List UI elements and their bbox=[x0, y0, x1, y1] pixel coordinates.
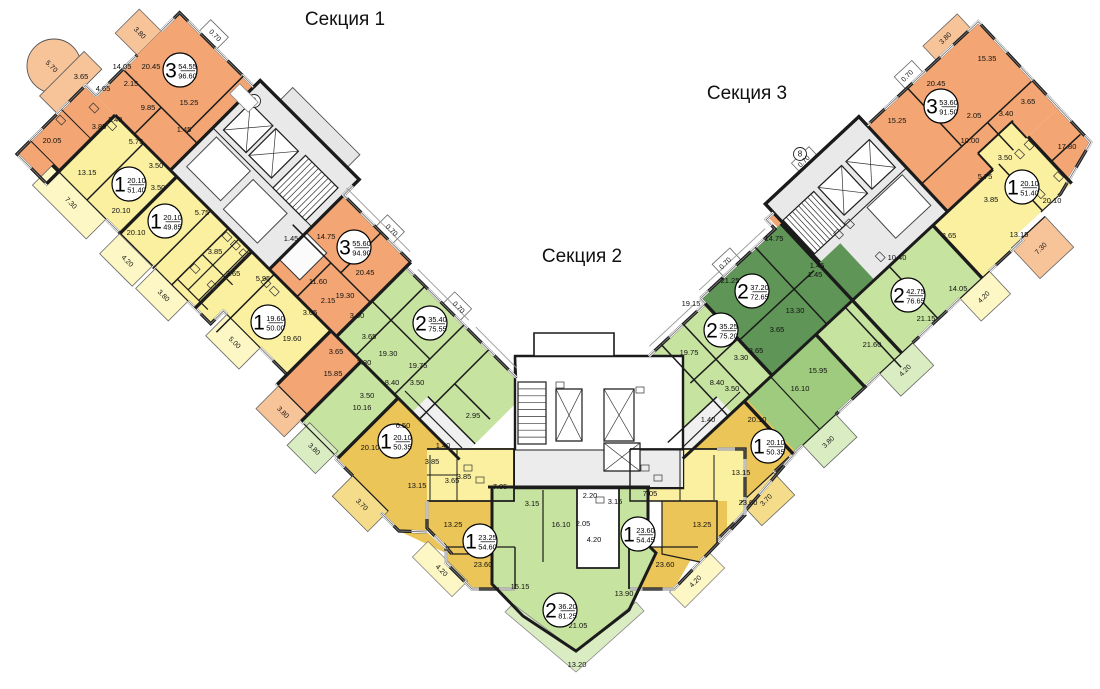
svg-text:6.50: 6.50 bbox=[396, 421, 411, 430]
svg-text:2: 2 bbox=[415, 313, 427, 336]
svg-text:49.85: 49.85 bbox=[163, 223, 182, 232]
svg-text:42.75: 42.75 bbox=[906, 287, 925, 296]
svg-text:Секция 1: Секция 1 bbox=[305, 9, 385, 30]
svg-text:5.75: 5.75 bbox=[195, 208, 210, 217]
svg-text:3.65: 3.65 bbox=[770, 325, 785, 334]
svg-text:3.50: 3.50 bbox=[725, 384, 740, 393]
svg-text:1: 1 bbox=[465, 531, 477, 554]
svg-text:14.05: 14.05 bbox=[113, 62, 132, 71]
svg-text:3.65: 3.65 bbox=[329, 347, 344, 356]
svg-text:81.25: 81.25 bbox=[558, 612, 577, 621]
svg-text:3.65: 3.65 bbox=[942, 231, 957, 240]
svg-text:19.30: 19.30 bbox=[336, 291, 355, 300]
svg-text:15.85: 15.85 bbox=[324, 369, 343, 378]
svg-text:13.25: 13.25 bbox=[693, 520, 712, 529]
svg-text:8.40: 8.40 bbox=[385, 378, 400, 387]
svg-text:50.35: 50.35 bbox=[766, 448, 785, 457]
svg-text:20.10: 20.10 bbox=[766, 438, 785, 447]
svg-text:3.65: 3.65 bbox=[749, 346, 764, 355]
svg-text:16.10: 16.10 bbox=[791, 384, 810, 393]
svg-text:3.15: 3.15 bbox=[525, 499, 540, 508]
svg-text:55.60: 55.60 bbox=[352, 239, 371, 248]
svg-text:3.30: 3.30 bbox=[357, 358, 372, 367]
svg-text:2: 2 bbox=[545, 600, 557, 623]
svg-text:Секция 2: Секция 2 bbox=[542, 246, 622, 267]
svg-text:3.50: 3.50 bbox=[149, 161, 164, 170]
svg-text:1.40: 1.40 bbox=[436, 441, 451, 450]
svg-text:2.20: 2.20 bbox=[583, 491, 598, 500]
svg-text:3: 3 bbox=[165, 60, 177, 83]
svg-text:23.60: 23.60 bbox=[636, 526, 655, 535]
svg-text:13.15: 13.15 bbox=[732, 468, 751, 477]
svg-text:19.60: 19.60 bbox=[266, 314, 285, 323]
svg-text:9.85: 9.85 bbox=[141, 103, 156, 112]
svg-text:19.75: 19.75 bbox=[409, 361, 428, 370]
svg-text:23.60: 23.60 bbox=[656, 560, 675, 569]
svg-text:20.10: 20.10 bbox=[127, 228, 146, 237]
svg-text:3.05: 3.05 bbox=[303, 308, 318, 317]
svg-text:8: 8 bbox=[798, 150, 803, 159]
svg-text:53.60: 53.60 bbox=[939, 98, 958, 107]
svg-text:3.50: 3.50 bbox=[151, 183, 166, 192]
svg-text:20.45: 20.45 bbox=[356, 268, 375, 277]
svg-text:13.15: 13.15 bbox=[1010, 230, 1029, 239]
svg-text:15.95: 15.95 bbox=[809, 366, 828, 375]
svg-text:23.60: 23.60 bbox=[739, 498, 758, 507]
svg-text:23.25: 23.25 bbox=[478, 533, 497, 542]
svg-text:36.20: 36.20 bbox=[558, 602, 577, 611]
svg-text:15.35: 15.35 bbox=[978, 54, 997, 63]
svg-text:20.05: 20.05 bbox=[43, 136, 62, 145]
svg-text:2.15: 2.15 bbox=[124, 79, 139, 88]
svg-text:20.10: 20.10 bbox=[748, 415, 767, 424]
svg-text:15.25: 15.25 bbox=[888, 116, 907, 125]
svg-text:10.00: 10.00 bbox=[961, 136, 980, 145]
svg-text:20.10: 20.10 bbox=[1043, 196, 1062, 205]
svg-text:2.05: 2.05 bbox=[967, 111, 982, 120]
svg-text:3: 3 bbox=[339, 237, 351, 260]
svg-text:1: 1 bbox=[380, 431, 392, 454]
svg-text:21.60: 21.60 bbox=[863, 340, 882, 349]
svg-text:3.40: 3.40 bbox=[999, 109, 1014, 118]
svg-text:1: 1 bbox=[114, 174, 126, 197]
svg-text:5.75: 5.75 bbox=[129, 137, 144, 146]
svg-text:1.40: 1.40 bbox=[701, 415, 716, 424]
svg-text:4.65: 4.65 bbox=[96, 84, 111, 93]
svg-text:54.60: 54.60 bbox=[478, 543, 497, 552]
svg-text:1.45: 1.45 bbox=[284, 234, 299, 243]
svg-text:14.05: 14.05 bbox=[949, 284, 968, 293]
svg-text:96.60: 96.60 bbox=[178, 72, 197, 81]
svg-text:20.10: 20.10 bbox=[112, 206, 131, 215]
svg-text:15.25: 15.25 bbox=[180, 98, 199, 107]
svg-text:20.45: 20.45 bbox=[927, 79, 946, 88]
svg-text:3.85: 3.85 bbox=[425, 457, 440, 466]
svg-text:3.85: 3.85 bbox=[92, 122, 107, 131]
svg-text:3.60: 3.60 bbox=[350, 311, 365, 320]
svg-text:54.55: 54.55 bbox=[178, 62, 197, 71]
svg-text:3.85: 3.85 bbox=[984, 195, 999, 204]
svg-text:54.45: 54.45 bbox=[636, 536, 655, 545]
svg-text:2.95: 2.95 bbox=[466, 411, 481, 420]
svg-text:3.65: 3.65 bbox=[362, 332, 377, 341]
svg-text:3.65: 3.65 bbox=[445, 476, 460, 485]
svg-text:16.10: 16.10 bbox=[552, 520, 571, 529]
svg-text:20.45: 20.45 bbox=[142, 62, 161, 71]
svg-text:1.45: 1.45 bbox=[808, 270, 823, 279]
svg-text:1: 1 bbox=[150, 211, 162, 234]
svg-text:2: 2 bbox=[893, 285, 905, 308]
svg-text:4.20: 4.20 bbox=[587, 535, 602, 544]
svg-text:7.05: 7.05 bbox=[643, 489, 658, 498]
svg-text:37.20: 37.20 bbox=[750, 283, 769, 292]
svg-text:Секция 3: Секция 3 bbox=[707, 83, 787, 104]
svg-text:21.05: 21.05 bbox=[569, 621, 588, 630]
svg-text:1: 1 bbox=[753, 436, 765, 459]
svg-text:51.40: 51.40 bbox=[127, 186, 146, 195]
svg-text:23.60: 23.60 bbox=[474, 560, 493, 569]
svg-text:13.20: 13.20 bbox=[568, 660, 587, 669]
svg-text:2.15: 2.15 bbox=[321, 296, 336, 305]
svg-text:7.05: 7.05 bbox=[493, 482, 508, 491]
svg-text:20.10: 20.10 bbox=[163, 213, 182, 222]
svg-text:3.30: 3.30 bbox=[734, 353, 749, 362]
svg-text:75.55: 75.55 bbox=[428, 325, 447, 334]
svg-text:1: 1 bbox=[623, 524, 635, 547]
svg-text:3.50: 3.50 bbox=[410, 378, 425, 387]
svg-text:1.45: 1.45 bbox=[810, 261, 825, 270]
svg-text:13.15: 13.15 bbox=[408, 481, 427, 490]
svg-text:2.05: 2.05 bbox=[576, 519, 591, 528]
svg-text:20.10: 20.10 bbox=[1020, 179, 1039, 188]
svg-text:1.45: 1.45 bbox=[177, 125, 192, 134]
svg-text:50.00: 50.00 bbox=[266, 324, 285, 333]
svg-text:76.65: 76.65 bbox=[906, 297, 925, 306]
svg-text:5.75: 5.75 bbox=[978, 172, 993, 181]
svg-text:3.65: 3.65 bbox=[74, 72, 89, 81]
svg-text:14.75: 14.75 bbox=[765, 234, 784, 243]
svg-text:5.95: 5.95 bbox=[256, 274, 271, 283]
svg-text:20.10: 20.10 bbox=[393, 433, 412, 442]
svg-text:3.15: 3.15 bbox=[608, 497, 623, 506]
svg-text:8.40: 8.40 bbox=[710, 378, 725, 387]
svg-text:15.15: 15.15 bbox=[511, 582, 530, 591]
svg-text:3.65: 3.65 bbox=[226, 269, 241, 278]
svg-text:21.15: 21.15 bbox=[917, 314, 936, 323]
svg-text:19.30: 19.30 bbox=[379, 349, 398, 358]
svg-text:19.60: 19.60 bbox=[283, 334, 302, 343]
svg-text:72.65: 72.65 bbox=[750, 293, 769, 302]
svg-text:19.75: 19.75 bbox=[680, 348, 699, 357]
svg-text:51.40: 51.40 bbox=[1020, 189, 1039, 198]
svg-text:17.80: 17.80 bbox=[1058, 142, 1077, 151]
svg-text:13.15: 13.15 bbox=[78, 168, 97, 177]
svg-text:1: 1 bbox=[253, 312, 265, 335]
svg-text:50.35: 50.35 bbox=[393, 443, 412, 452]
svg-text:75.20: 75.20 bbox=[719, 332, 738, 341]
svg-text:20.10: 20.10 bbox=[361, 443, 380, 452]
svg-text:13.90: 13.90 bbox=[615, 589, 634, 598]
svg-text:2: 2 bbox=[706, 320, 718, 343]
svg-text:3.85: 3.85 bbox=[208, 247, 223, 256]
svg-text:91.50: 91.50 bbox=[939, 108, 958, 117]
svg-text:3.65: 3.65 bbox=[1021, 97, 1036, 106]
svg-text:1.40: 1.40 bbox=[108, 115, 123, 124]
svg-text:11.60: 11.60 bbox=[309, 277, 327, 286]
svg-text:20.10: 20.10 bbox=[127, 176, 146, 185]
svg-text:14.75: 14.75 bbox=[317, 232, 336, 241]
svg-text:10.16: 10.16 bbox=[353, 403, 372, 412]
svg-text:1: 1 bbox=[1007, 177, 1019, 200]
svg-text:94.90: 94.90 bbox=[352, 249, 371, 258]
svg-text:13.25: 13.25 bbox=[444, 520, 463, 529]
svg-text:21.25: 21.25 bbox=[721, 276, 740, 285]
svg-text:3: 3 bbox=[926, 96, 938, 119]
svg-text:35.40: 35.40 bbox=[428, 315, 447, 324]
svg-text:19.15: 19.15 bbox=[682, 299, 701, 308]
svg-text:3.50: 3.50 bbox=[360, 391, 375, 400]
svg-text:35.25: 35.25 bbox=[719, 322, 738, 331]
svg-text:3.50: 3.50 bbox=[998, 153, 1013, 162]
svg-text:13.30: 13.30 bbox=[786, 306, 805, 315]
svg-text:10.40: 10.40 bbox=[888, 253, 907, 262]
